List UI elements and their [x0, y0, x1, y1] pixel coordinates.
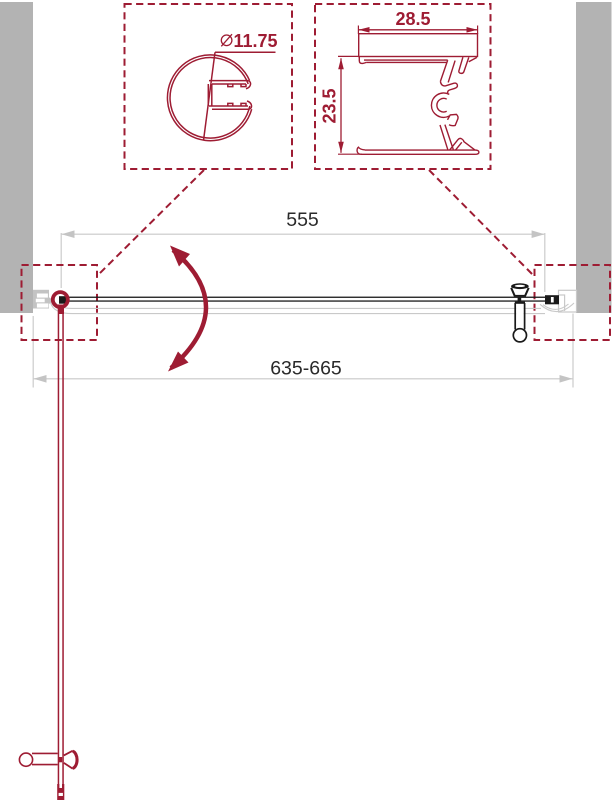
- svg-text:555: 555: [286, 209, 319, 231]
- svg-text:28.5: 28.5: [395, 9, 430, 29]
- svg-text:11.75: 11.75: [234, 31, 278, 51]
- svg-text:23.5: 23.5: [320, 88, 340, 123]
- svg-text:635-665: 635-665: [270, 358, 342, 380]
